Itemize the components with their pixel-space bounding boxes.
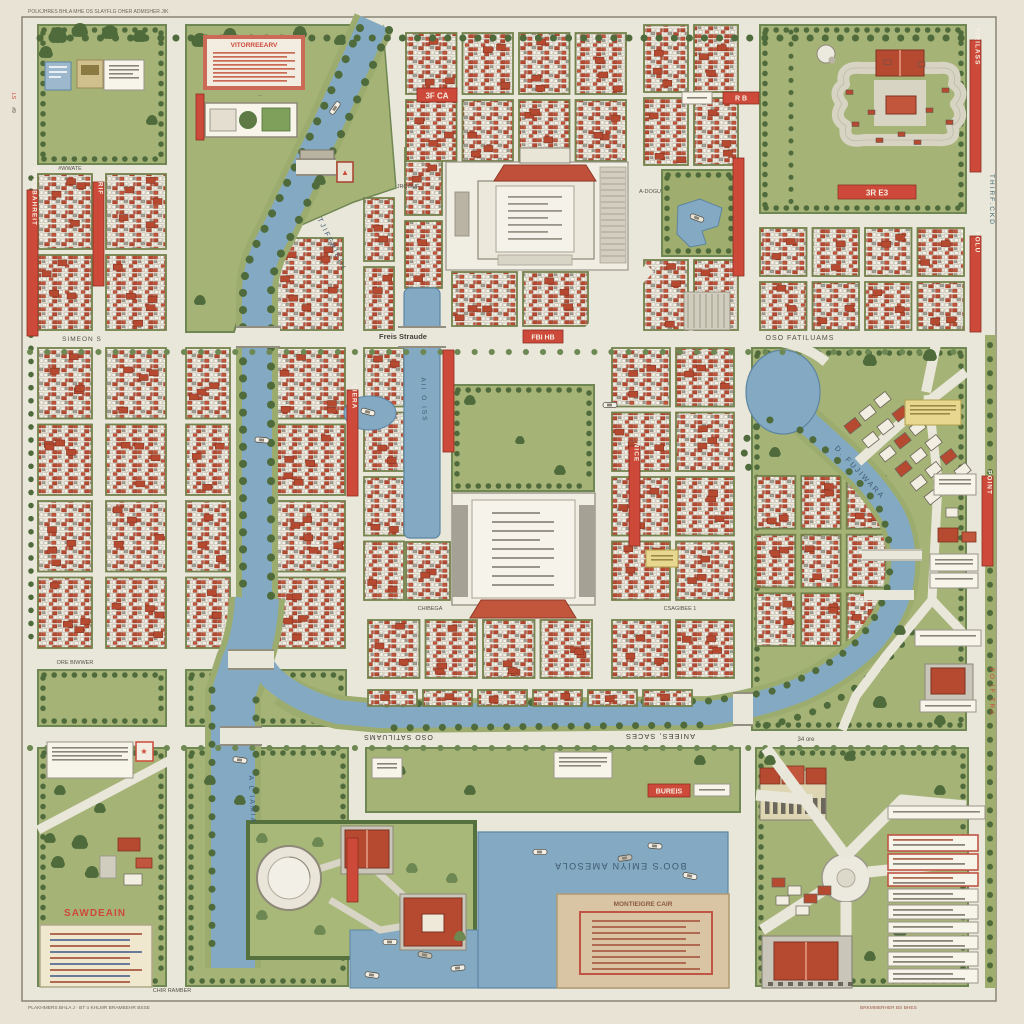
svg-text:NICE: NICE xyxy=(633,443,640,463)
svg-text:VITORREEARV: VITORREEARV xyxy=(231,42,278,49)
svg-text:3R E3: 3R E3 xyxy=(866,189,889,198)
svg-text:BOO'S EMIYN AMESOLA: BOO'S EMIYN AMESOLA xyxy=(554,861,687,871)
svg-text:PO.IF.TRA: PO.IF.TRA xyxy=(988,667,995,716)
svg-text:CSAGIBEE 1: CSAGIBEE 1 xyxy=(664,606,697,612)
svg-text:CHIBEGA: CHIBEGA xyxy=(418,606,443,612)
svg-text:JROGUF: JROGUF xyxy=(397,184,420,190)
svg-text:BRKMMERHER BS BHES: BRKMMERHER BS BHES xyxy=(860,1005,917,1011)
svg-text:BUREIS: BUREIS xyxy=(656,789,683,796)
svg-text:SAWDEAIN: SAWDEAIN xyxy=(64,908,126,919)
svg-text:LS: LS xyxy=(10,93,16,100)
svg-text:▲: ▲ xyxy=(341,168,349,177)
svg-text:THIRF.CKD: THIRF.CKD xyxy=(988,174,995,226)
svg-text:PLAKHMERS BHLA J · BT o KHLMR: PLAKHMERS BHLA J · BT o KHLMR BRAMBEHR B… xyxy=(28,1005,150,1011)
svg-text:...: ... xyxy=(258,92,262,98)
svg-text:OSO SATILUAMS: OSO SATILUAMS xyxy=(363,733,433,740)
svg-text:R B: R B xyxy=(735,96,747,103)
svg-text:CHIR RAMBER: CHIR RAMBER xyxy=(153,988,192,994)
svg-text:FBI HB: FBI HB xyxy=(531,335,554,342)
svg-text:TIRILASS: TIRILASS xyxy=(974,28,981,66)
svg-text:GIERA: GIERA xyxy=(351,384,358,410)
svg-text:★: ★ xyxy=(140,747,147,756)
svg-text:RIF: RIF xyxy=(97,182,104,195)
svg-text:#9: #9 xyxy=(10,107,16,113)
svg-text:#WWATE: #WWATE xyxy=(58,166,82,172)
svg-text:POLKJHRES BHLA MHE OS SLAYFLG: POLKJHRES BHLA MHE OS SLAYFLG OHER ADMIS… xyxy=(28,9,169,15)
svg-text:34 ore: 34 ore xyxy=(797,737,815,743)
svg-text:FOLU: FOLU xyxy=(974,232,981,254)
svg-text:A-DOGU: A-DOGU xyxy=(639,189,661,195)
svg-text:SIMEON S: SIMEON S xyxy=(62,336,102,343)
svg-text:3F CA: 3F CA xyxy=(425,92,448,101)
svg-text:OSO FATILUAMS: OSO FATILUAMS xyxy=(766,335,835,342)
svg-text:ANIEES, SACES: ANIEES, SACES xyxy=(625,732,695,741)
svg-text:HUBGBAHREIT: HUBGBAHREIT xyxy=(31,167,38,226)
svg-text:POINT: POINT xyxy=(986,470,993,495)
svg-text:MONTIEIGRE CAIR: MONTIEIGRE CAIR xyxy=(614,901,673,908)
svg-text:ORE BIWWER: ORE BIWWER xyxy=(57,660,94,666)
svg-text:Freis Straude: Freis Straude xyxy=(379,332,427,341)
